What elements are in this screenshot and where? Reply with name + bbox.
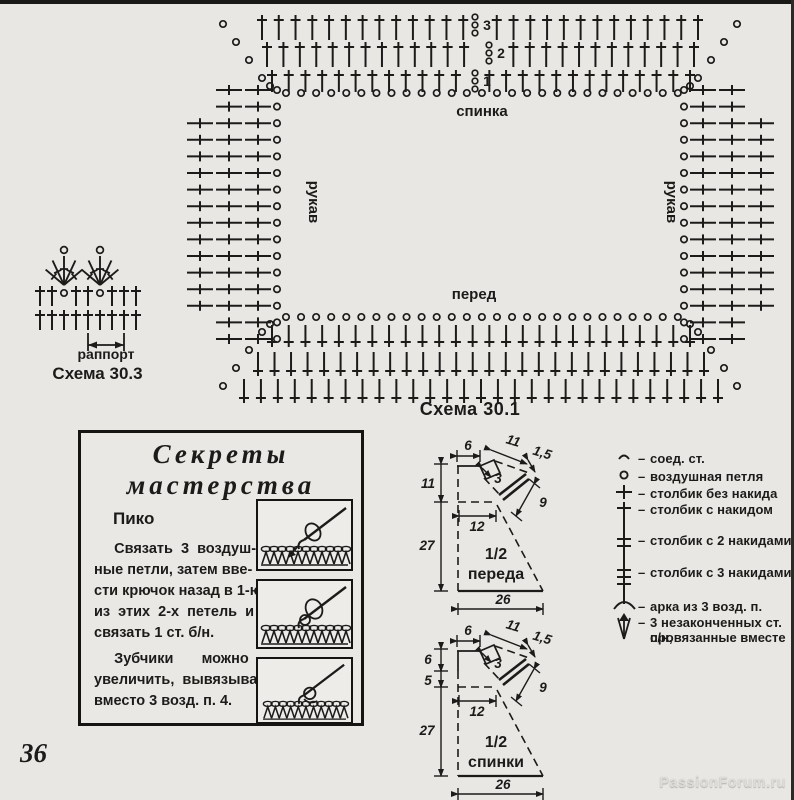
legend-dash: – (638, 565, 650, 580)
dc-symbol (719, 334, 745, 344)
back-dim-half-chest: 12 (469, 704, 485, 719)
chain-circle (274, 153, 280, 159)
dc-symbol (748, 234, 774, 244)
chain-circle (472, 22, 478, 28)
sleeve-label-left: рукав (305, 181, 322, 223)
tips-subtitle: Пико (113, 509, 154, 529)
dc-symbol (690, 168, 716, 178)
dc-symbol (659, 15, 669, 40)
dc-symbol (652, 325, 662, 347)
dc-symbol (187, 301, 213, 311)
picot-step-3-drawing (258, 659, 351, 722)
dc-symbol (484, 325, 494, 347)
back-dim-side-upper: 6 (424, 652, 432, 667)
dc-symbol (336, 352, 346, 376)
dc-symbol (245, 135, 271, 145)
dc-symbol (187, 118, 213, 128)
dc-symbol (385, 352, 395, 376)
dc-symbol (719, 201, 745, 211)
chain-circle (373, 90, 379, 96)
dc-symbol (107, 286, 117, 306)
dc-symbol (71, 310, 81, 330)
dc-symbol (719, 301, 745, 311)
chain-circle (644, 90, 650, 96)
dc-symbol (535, 70, 545, 92)
tips-text: Связать 3 воздуш- ные петли, затем вве- … (94, 539, 269, 712)
dc-symbol (291, 15, 301, 40)
dc-symbol (216, 251, 242, 261)
dc-symbol (401, 325, 411, 347)
dc-symbol (216, 168, 242, 178)
dc-symbol (656, 42, 666, 67)
dc-symbol (278, 42, 288, 67)
dc-symbol (35, 310, 45, 330)
dc-symbol (601, 70, 611, 92)
dc-symbol (239, 379, 249, 403)
chain-circle (388, 90, 394, 96)
dc-symbol (719, 268, 745, 278)
dc-symbol (245, 284, 271, 294)
chain-circle (681, 170, 687, 176)
dc-symbol (568, 70, 578, 92)
dc-symbol (187, 185, 213, 195)
chain-circle (274, 186, 280, 192)
dc-symbol (517, 352, 527, 376)
dc-symbol (216, 268, 242, 278)
chain-circle (734, 21, 740, 27)
dc-symbol (690, 201, 716, 211)
dc-symbol (358, 15, 368, 40)
chain-circle (358, 314, 364, 320)
dc-symbol (568, 325, 578, 347)
dc-symbol (374, 15, 384, 40)
back-label: спинка (456, 103, 508, 120)
chain-circle (220, 383, 226, 389)
chain-circle (343, 90, 349, 96)
dc-symbol (317, 325, 327, 347)
dc-symbol (216, 102, 242, 112)
chain-circle (599, 90, 605, 96)
dc-symbol (719, 284, 745, 294)
chain-circle (486, 50, 492, 56)
stitch-texture (263, 701, 349, 719)
stitch-texture (261, 625, 351, 644)
dc-symbol (719, 251, 745, 261)
dc-symbol (748, 135, 774, 145)
legend-dash: – (638, 486, 650, 501)
front-dim-half-chest: 12 (469, 519, 485, 534)
chain-circle (61, 290, 67, 296)
chain-circle (675, 314, 681, 320)
dc-symbol (690, 284, 716, 294)
dc-symbol (696, 379, 706, 403)
chain-circle (681, 303, 687, 309)
dc-symbol (245, 268, 271, 278)
dc-symbol (626, 15, 636, 40)
dc-symbol (628, 379, 638, 403)
legend-label: соед. ст. (650, 451, 705, 466)
chain-circle (599, 314, 605, 320)
dc-symbol (713, 379, 723, 403)
dc-symbol (216, 234, 242, 244)
legend-item-chain: – воздушная петля (612, 469, 763, 484)
chain-circle (274, 170, 280, 176)
dc-symbol (609, 15, 619, 40)
front-dim-shoulder-drop: 1,5 (531, 443, 554, 463)
dc-symbol (216, 317, 242, 327)
chain-circle (486, 42, 492, 48)
legend-dash: – (638, 599, 650, 614)
chain-stitch-icon (612, 469, 638, 481)
dc-symbol (216, 284, 242, 294)
dc-symbol (131, 310, 141, 330)
dc-symbol (484, 352, 494, 376)
dc-symbol (216, 301, 242, 311)
dc-symbol (417, 325, 427, 347)
dc-symbol (295, 42, 305, 67)
dc-symbol (245, 118, 271, 128)
front-label-name: переда (468, 566, 524, 583)
dc-symbol (492, 15, 502, 40)
dc-symbol (509, 15, 519, 40)
dc-symbol (187, 268, 213, 278)
dc-symbol (518, 325, 528, 347)
dc-symbol (690, 135, 716, 145)
dc-symbol (410, 42, 420, 67)
dc-symbol (187, 218, 213, 228)
chain-circle (681, 253, 687, 259)
chain-circle (274, 87, 280, 93)
chain-circle (681, 220, 687, 226)
chain-circle (418, 314, 424, 320)
chain-circle (274, 303, 280, 309)
dc-symbol (107, 310, 117, 330)
dc-symbol (216, 185, 242, 195)
legend-label-line2: провязанные вместе (650, 630, 786, 645)
dc-symbol (435, 352, 445, 376)
dc-symbol (693, 15, 703, 40)
dc-symbol (690, 102, 716, 112)
dc-symbol (652, 70, 662, 92)
chain-circle (434, 314, 440, 320)
chain-circle (358, 90, 364, 96)
schematic-front-half: 6 11 1,5 11 27 12 3 9 26 1/2 переда (400, 428, 615, 618)
dc-symbol (518, 70, 528, 92)
tips-p1-line: связать 1 ст. б/н. (94, 623, 269, 644)
dc-symbol (83, 310, 93, 330)
chain-circle (283, 314, 289, 320)
chain-circle (220, 21, 226, 27)
row-number: 2 (497, 45, 505, 61)
dc-symbol (645, 379, 655, 403)
dc-symbol (748, 301, 774, 311)
dc-symbol (559, 15, 569, 40)
dc-symbol (643, 15, 653, 40)
dc-symbol (216, 118, 242, 128)
dc-symbol (623, 42, 633, 67)
legend-item-slip-stitch: – соед. ст. (612, 451, 705, 466)
dc-symbol (719, 151, 745, 161)
chain-circle (464, 314, 470, 320)
chain-circle (97, 247, 104, 254)
middle-row (35, 286, 141, 306)
chain-circle (274, 319, 280, 325)
dc-symbol (595, 379, 605, 403)
row-number: 1 (483, 73, 491, 89)
dc-symbol (618, 325, 628, 347)
dc-symbol (401, 70, 411, 92)
dc-symbol (719, 118, 745, 128)
single-crochet-icon (612, 486, 638, 500)
dc-symbol (47, 310, 57, 330)
chain-circle (629, 90, 635, 96)
dc-symbol (719, 168, 745, 178)
chain-circle (721, 39, 727, 45)
dc-symbol (284, 325, 294, 347)
dc-symbol (402, 352, 412, 376)
front-panel-rows (239, 325, 723, 403)
dc-symbol (748, 201, 774, 211)
small-chart-caption: Схема 30.3 (30, 364, 165, 384)
chain-circle (388, 314, 394, 320)
chain-circle (708, 57, 714, 63)
dc-symbol (290, 379, 300, 403)
legend-item-arch: – арка из 3 возд. п. (612, 599, 762, 614)
dc-symbol (274, 15, 284, 40)
dc-symbol (690, 151, 716, 161)
chain-circle (509, 314, 515, 320)
dc-symbol (187, 251, 213, 261)
legend-label: столбик с 2 накидами (650, 533, 792, 548)
front-dim-neck: 3 (494, 471, 502, 486)
dc-symbol (361, 42, 371, 67)
chain-circle (464, 90, 470, 96)
dc-symbol (216, 151, 242, 161)
dc-symbol (666, 352, 676, 376)
watermark: PassionForum.ru (659, 775, 786, 791)
chain-circle (614, 90, 620, 96)
dc-symbol (328, 42, 338, 67)
page-number: 36 (20, 738, 47, 769)
picot-step-1-drawing (258, 501, 351, 569)
chain-circle (681, 336, 687, 342)
chain-circle (681, 236, 687, 242)
back-dim-shoulder-drop: 1,5 (531, 628, 554, 648)
dc-symbol (35, 286, 45, 306)
dc-symbol (317, 70, 327, 92)
chain-circle (449, 314, 455, 320)
dc-symbol (434, 325, 444, 347)
dc-symbol (351, 70, 361, 92)
back-dim-side-lower: 27 (418, 723, 436, 738)
legend-dash: – (638, 469, 650, 484)
chain-circle (721, 365, 727, 371)
dc-symbol (719, 135, 745, 145)
dc-symbol (458, 15, 468, 40)
sleeve-label-right: рукав (663, 181, 680, 223)
dc-symbol (525, 42, 535, 67)
back-dim-armhole: 9 (539, 680, 547, 695)
dc-symbol (558, 42, 568, 67)
dc-symbol (451, 325, 461, 347)
dc-symbol (187, 234, 213, 244)
chain-circle (283, 90, 289, 96)
dc-symbol (676, 15, 686, 40)
dc-symbol (501, 325, 511, 347)
dc-symbol (270, 352, 280, 376)
dc-symbol (216, 201, 242, 211)
dc-symbol (468, 352, 478, 376)
dc-symbol (393, 42, 403, 67)
dc-symbol (748, 284, 774, 294)
dc-symbol (585, 325, 595, 347)
chain-circle (449, 90, 455, 96)
dc-symbol (468, 325, 478, 347)
chain-circle (259, 75, 265, 81)
double-crochet-icon (612, 502, 638, 534)
tips-p1-line: сти крючок назад в 1-ю (94, 581, 269, 602)
tips-title-line1: Секреты (81, 439, 361, 470)
front-label-fraction: 1/2 (485, 546, 507, 563)
chain-circle (298, 314, 304, 320)
working-loop (300, 597, 325, 625)
chain-circle (472, 86, 478, 92)
dc-symbol (216, 85, 242, 95)
dc-symbol (748, 218, 774, 228)
stitch-texture (261, 546, 351, 565)
legend-item-treble-2: – столбик с 2 накидами (612, 533, 792, 569)
dc-symbol (690, 234, 716, 244)
dc-symbol (635, 70, 645, 92)
chain-circle (274, 253, 280, 259)
dc-symbol (311, 42, 321, 67)
chain-circle (524, 314, 530, 320)
chain-circle (584, 90, 590, 96)
chain-circle (472, 14, 478, 20)
chain-circle (343, 314, 349, 320)
front-dim-top: 6 (464, 438, 472, 453)
chain-circle (524, 90, 530, 96)
dc-symbol (585, 70, 595, 92)
legend-dash: – (638, 451, 650, 466)
chain-circle (629, 314, 635, 320)
dc-symbol (719, 85, 745, 95)
back-label-fraction: 1/2 (485, 734, 507, 751)
dc-symbol (367, 70, 377, 92)
row-number: 3 (483, 17, 491, 33)
dc-symbol (384, 325, 394, 347)
legend-item-cluster: – 3 незаконченных ст. с/н, провязанные в… (612, 615, 794, 645)
dc-symbol (451, 352, 461, 376)
dc-symbol (71, 286, 81, 306)
dc-symbol (574, 42, 584, 67)
dc-symbol (344, 42, 354, 67)
tips-p1-line: ные петли, затем вве- (94, 560, 269, 581)
turning-chains: 123 (472, 14, 505, 92)
chain-circle (681, 286, 687, 292)
back-label-name: спинки (468, 754, 524, 771)
dc-symbol (377, 42, 387, 67)
chain-circle (479, 90, 485, 96)
dc-symbol (616, 352, 626, 376)
dc-symbol (131, 286, 141, 306)
dc-symbol (508, 42, 518, 67)
dc-symbol (425, 15, 435, 40)
dc-symbol (535, 325, 545, 347)
chain-circle (681, 120, 687, 126)
dc-symbol (245, 168, 271, 178)
dc-symbol (286, 352, 296, 376)
tips-p1-line: из этих 2-х петель и (94, 602, 269, 623)
dc-symbol (187, 151, 213, 161)
chain-circle (274, 269, 280, 275)
back-dim-bottom: 26 (494, 777, 511, 792)
dc-symbol (187, 284, 213, 294)
dc-symbol (119, 286, 129, 306)
dc-symbol (618, 70, 628, 92)
tips-p2-line: увеличить, вывязывая (94, 670, 269, 691)
dc-symbol (662, 379, 672, 403)
dc-symbol (417, 70, 427, 92)
dc-symbol (690, 251, 716, 261)
chain-circle (246, 347, 252, 353)
legend-label: столбик с накидом (650, 502, 773, 517)
back-dim-side-mid: 5 (424, 673, 432, 688)
dc-symbol (542, 15, 552, 40)
dc-symbol (748, 251, 774, 261)
chain-circle (328, 314, 334, 320)
dc-symbol (273, 379, 283, 403)
front-dim-shoulder: 11 (504, 431, 522, 449)
dc-symbol (583, 352, 593, 376)
dc-symbol (551, 70, 561, 92)
dc-symbol (443, 42, 453, 67)
chain-circle (539, 314, 545, 320)
legend-label: столбик с 3 накидами (650, 565, 792, 580)
chain-circle (681, 203, 687, 209)
chain-circle (660, 314, 666, 320)
dc-symbol (748, 151, 774, 161)
chain-circle (681, 269, 687, 275)
legend-item-single-crochet: – столбик без накида (612, 486, 777, 501)
dc-symbol (576, 15, 586, 40)
dc-symbol (262, 42, 272, 67)
chain-circle (472, 78, 478, 84)
sleeve-rows (187, 85, 774, 344)
dc-symbol (668, 70, 678, 92)
chain-circle (554, 90, 560, 96)
chain-circle (486, 58, 492, 64)
dc-symbol (245, 301, 271, 311)
dc-symbol (501, 352, 511, 376)
chain-circle (274, 120, 280, 126)
tips-p2-line: вместо 3 возд. п. 4. (94, 691, 269, 712)
chain-circle (695, 75, 701, 81)
dc-symbol (611, 379, 621, 403)
dc-symbol (341, 15, 351, 40)
dc-symbol (690, 301, 716, 311)
dc-symbol (187, 201, 213, 211)
chain-circle (681, 186, 687, 192)
dc-symbol (748, 118, 774, 128)
chain-circle (434, 90, 440, 96)
dc-symbol (592, 15, 602, 40)
picot-step-3-illustration (256, 657, 353, 724)
chain-circle (274, 103, 280, 109)
legend-dash: – (638, 615, 650, 630)
dc-symbol (551, 325, 561, 347)
chain-circle (681, 153, 687, 159)
